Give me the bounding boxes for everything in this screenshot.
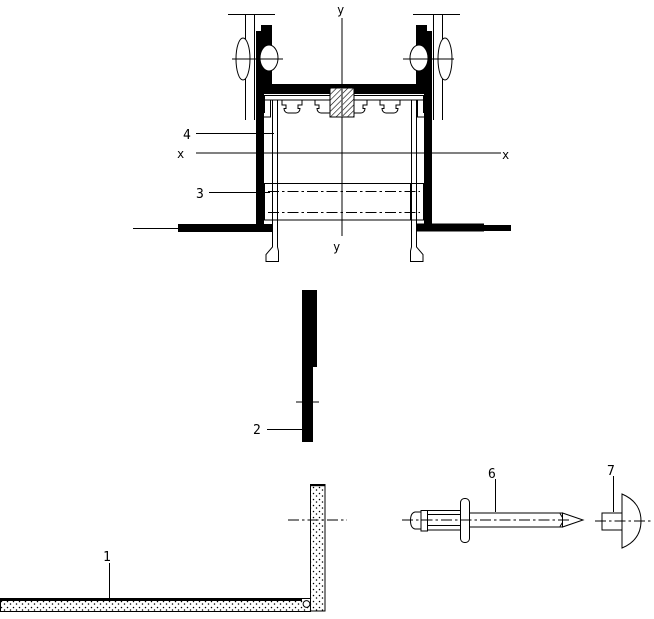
part-6-callout: 6 xyxy=(488,467,496,482)
technical-drawing: y y x x 4 3 2 1 6 7 xyxy=(0,0,654,619)
edge-trim-strip xyxy=(267,290,319,442)
side-wall-left xyxy=(256,94,264,224)
blind-rivet xyxy=(402,479,583,543)
axis-x-right-label: x xyxy=(502,148,509,162)
part-2-callout: 2 xyxy=(253,423,261,438)
cad-drawing-canvas: y y x x 4 3 2 1 6 7 xyxy=(0,0,654,619)
axis-y-top-label: y xyxy=(337,3,344,17)
part-1-callout: 1 xyxy=(103,550,111,565)
part-4-callout: 4 xyxy=(183,128,191,143)
ceiling-panel-right xyxy=(416,224,511,232)
axis-y-bottom-label: y xyxy=(333,240,340,254)
axis-x-left-label: x xyxy=(177,147,184,161)
clamp-roller-right-inner xyxy=(410,45,428,71)
ceiling-panel-left xyxy=(133,224,272,232)
channel-walls xyxy=(266,100,423,262)
corner-drip-curl xyxy=(303,601,310,608)
cross-runner xyxy=(265,184,424,221)
angle-sheet xyxy=(0,485,347,612)
clamp-roller-left-inner xyxy=(260,45,278,71)
part-7-callout: 7 xyxy=(607,464,615,479)
part-3-callout: 3 xyxy=(196,187,204,202)
side-wall-right xyxy=(424,94,432,224)
dome-cap xyxy=(595,476,651,548)
